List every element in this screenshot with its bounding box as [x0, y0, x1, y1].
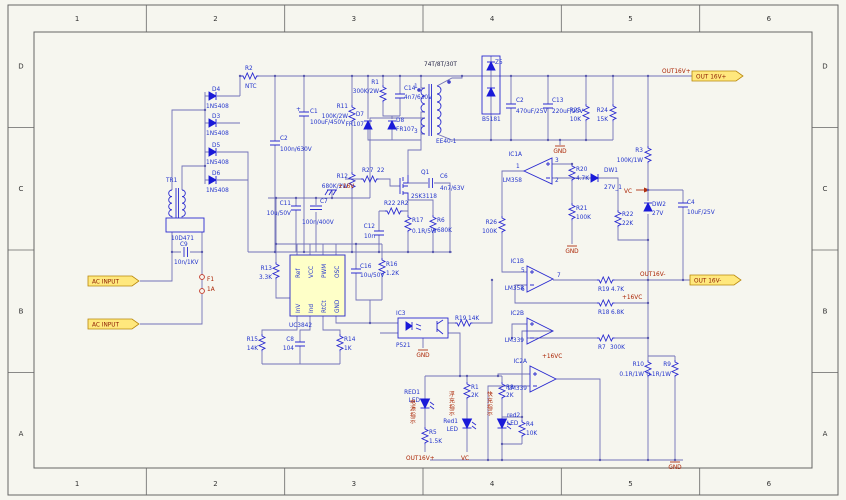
- gnd-label: GND: [553, 149, 567, 155]
- diode-d6: [209, 176, 216, 184]
- zone-col-bottom: 5: [628, 480, 632, 488]
- resistor-r22g: [385, 208, 403, 214]
- schematic-label: 2K: [471, 393, 479, 399]
- zone-row-left: A: [19, 430, 24, 438]
- schematic-label: +16VC: [622, 295, 642, 301]
- schematic-label: 27V: [652, 211, 663, 217]
- schematic-label: 10uF/25V: [687, 210, 715, 216]
- schematic-label: 1.2K: [386, 271, 399, 277]
- schematic-label: C6: [440, 174, 448, 180]
- port-label: OUT 16V+: [696, 74, 727, 80]
- schematic-label: R26: [486, 220, 498, 226]
- opamp-ic1a: [524, 158, 552, 184]
- transformer-t1: [418, 81, 451, 136]
- schematic-label: C11: [280, 201, 292, 207]
- schematic-label: R22: [622, 212, 634, 218]
- zone-col-bottom: 3: [352, 480, 356, 488]
- schematic-label: R4: [526, 422, 534, 428]
- schematic-label: 2R2: [397, 201, 409, 207]
- schematic-label: IC2A: [514, 359, 527, 365]
- schematic-label: 4n7/630V: [404, 95, 432, 101]
- zone-col-top: 6: [767, 15, 772, 23]
- schematic-label: R19: [455, 316, 467, 322]
- resistor-r7: [597, 335, 615, 341]
- schematic-label: C8: [286, 337, 294, 343]
- schematic-label: 5: [521, 268, 525, 274]
- gnd-symbol: GND: [416, 350, 430, 359]
- zone-col-top: 2: [213, 15, 217, 23]
- schematic-label: 470uF/25V: [516, 109, 547, 115]
- resistor-r11: [349, 105, 355, 123]
- schematic-label: C2: [280, 136, 288, 142]
- schematic-label: 1.5K: [429, 439, 442, 445]
- led-arrows: [430, 402, 511, 429]
- schematic-label: 6: [521, 287, 525, 293]
- schematic-label: P521: [396, 343, 411, 349]
- port-label: OUT 16V-: [694, 278, 721, 284]
- schematic-label: R25: [570, 108, 582, 114]
- schematic-label: C9: [180, 242, 188, 248]
- zone-row-right: D: [822, 62, 827, 70]
- schematic-label: R11: [337, 104, 349, 110]
- schematic-label: RtCt: [322, 300, 328, 313]
- diode-d4: [209, 92, 216, 100]
- schematic-label: IC2B: [511, 311, 524, 317]
- schematic-label: RED1: [404, 390, 420, 396]
- schematic-label: B5181: [482, 117, 501, 123]
- schematic-label: FR107: [346, 122, 365, 128]
- schematic-label: 10u/50V: [267, 211, 291, 217]
- schematic-label: F1: [207, 277, 214, 283]
- schematic-label: VC: [624, 189, 632, 195]
- schematic-label: FR107: [396, 127, 415, 133]
- schematic-label: 1N5408: [206, 131, 229, 137]
- schematic-label: R16: [386, 262, 398, 268]
- schematic-label: 2SK3118: [411, 194, 437, 200]
- schematic-label: 100uF/450V: [310, 120, 345, 126]
- schematic-label: 100K: [482, 229, 497, 235]
- zone-row-right: C: [823, 185, 828, 193]
- schematic-label: 浮充指示: [449, 390, 455, 417]
- schematic-label: R21: [576, 206, 588, 212]
- cap-c9: [184, 247, 188, 257]
- zone-row-right: B: [823, 307, 828, 315]
- resistor-r18: [597, 300, 615, 306]
- resistor-r22: [615, 210, 621, 228]
- mosfet-q1: [400, 175, 408, 200]
- schematic-label: R24: [597, 108, 609, 114]
- schematic-label: 10u/50V: [360, 273, 384, 279]
- zone-col-bottom: 2: [213, 480, 217, 488]
- schematic-label: D3: [212, 114, 220, 120]
- cap-c8: [295, 342, 305, 346]
- schematic-label: R10: [633, 362, 645, 368]
- schematic-label: R6: [437, 218, 445, 224]
- schematic-label: 680K: [437, 228, 452, 234]
- schematic-label: 电源指示: [410, 398, 416, 425]
- schematic-label: 1: [414, 84, 418, 90]
- schematic-label: R7: [598, 345, 606, 351]
- resistor-r19: [597, 277, 615, 283]
- zone-col-top: 5: [628, 15, 632, 23]
- schematic-label: C1: [310, 109, 318, 115]
- schematic-label: C4: [687, 200, 695, 206]
- cap-c2: [270, 141, 280, 145]
- zone-row-right: A: [823, 430, 828, 438]
- diode-z5a: [487, 62, 495, 70]
- schematic-label: R5: [429, 430, 437, 436]
- schematic-label: R19: [598, 287, 610, 293]
- schematic-label: D6: [212, 171, 220, 177]
- schematic-label: DW2: [652, 202, 666, 208]
- schematic-label: 3: [555, 158, 559, 164]
- schematic-label: +16V: [338, 184, 354, 190]
- schematic-label: 1A: [207, 287, 215, 293]
- resistor-r4: [519, 420, 525, 438]
- schematic-label: Ind: [309, 304, 315, 313]
- schematic-label: IC3: [396, 311, 406, 317]
- resistor-led3: [499, 382, 505, 400]
- schematic-label: 7: [557, 273, 561, 279]
- schematic-label: 300K/2W: [353, 89, 380, 95]
- schematic-label: Red1: [443, 419, 458, 425]
- port-label: AC INPUT: [92, 279, 120, 285]
- schematic-label: 2: [555, 178, 559, 184]
- schematic-label: 74T/8T/30T: [424, 62, 457, 68]
- schematic-label: D5: [212, 143, 220, 149]
- schematic-label: 1N5408: [206, 160, 229, 166]
- gnd-label: GND: [416, 353, 430, 359]
- schematic-label: InV: [296, 304, 302, 313]
- cap-c13: [543, 104, 553, 108]
- resistor-r14: [337, 334, 343, 352]
- symbols-layer: [166, 56, 688, 461]
- schematic-label: LED: [447, 427, 459, 433]
- schematic-label: 100K/1W: [617, 158, 644, 164]
- resistor-r24: [610, 104, 616, 122]
- schematic-label: OUT16V+: [406, 456, 435, 462]
- schematic-label: R8: [506, 385, 514, 391]
- schematic-label: TR1: [165, 178, 178, 184]
- diode-d7: [364, 121, 372, 129]
- schematic-label: 1N5408: [206, 104, 229, 110]
- schematic-label: 14K: [468, 316, 479, 322]
- resistor-r17: [405, 215, 411, 233]
- optocoupler-ic3: [398, 318, 448, 338]
- schematic-label: 100n/400V: [302, 220, 334, 226]
- schematic-label: 15K: [597, 117, 608, 123]
- gnd-symbol: GND: [668, 462, 682, 471]
- schematic-page: 123456 123456 DCBA DCBA: [0, 0, 846, 500]
- zone-col-bottom: 6: [767, 480, 772, 488]
- resistor-r13: [273, 262, 279, 280]
- zone-col-top: 3: [352, 15, 356, 23]
- led-fast-charge: [498, 419, 507, 428]
- schematic-label: +16VC: [542, 354, 562, 360]
- schematic-label: UC3842: [289, 323, 312, 329]
- resistor-r21: [569, 203, 575, 221]
- schematic-label: 1N5408: [206, 188, 229, 194]
- schematic-label: C16: [360, 264, 372, 270]
- schematic-label: 22K: [622, 221, 633, 227]
- schematic-label: 10n: [364, 234, 375, 240]
- schematic-label: 14K: [247, 346, 258, 352]
- zone-col-top: 4: [490, 15, 495, 23]
- zone-row-left: C: [19, 185, 24, 193]
- schematic-label: 4.7K: [611, 287, 624, 293]
- schematic-label: R14: [344, 337, 356, 343]
- schematic-label: DW1: [604, 168, 618, 174]
- schematic-label: R1: [471, 385, 479, 391]
- led-red1: [421, 399, 430, 408]
- schematic-label: 3: [414, 129, 418, 135]
- resistor-r1: [380, 85, 386, 103]
- schematic-label: 1K: [344, 346, 352, 352]
- schematic-label: Q1: [421, 170, 430, 176]
- schematic-label: OSC: [335, 266, 341, 278]
- schematic-label: PWM: [322, 264, 328, 278]
- diode-d8: [388, 121, 396, 129]
- schematic-label: R13: [261, 266, 273, 272]
- zener-dw1: [591, 174, 598, 182]
- port-out-16v-[interactable]: OUT 16V-: [690, 275, 741, 285]
- schematic-canvas: 123456 123456 DCBA DCBA: [0, 0, 846, 500]
- schematic-label: LM339: [505, 338, 525, 344]
- schematic-label: LM358: [503, 178, 523, 184]
- schematic-label: 1: [516, 164, 520, 170]
- gnd-symbol: GND: [565, 246, 579, 255]
- resistor-r2-ntc: [241, 73, 259, 79]
- schematic-label: C13: [552, 98, 564, 104]
- schematic-label: red2: [507, 413, 521, 419]
- resistor-r25: [583, 104, 589, 122]
- schematic-label: GND: [335, 299, 341, 313]
- schematic-label: 10K: [526, 431, 537, 437]
- schematic-label: C2: [516, 98, 524, 104]
- schematic-label: 0.1R/1W: [619, 372, 644, 378]
- port-out-16v-[interactable]: OUT 16V+: [692, 71, 743, 81]
- schematic-label: R1: [371, 80, 379, 86]
- schematic-label: D7: [356, 112, 364, 118]
- schematic-label: 300K: [610, 345, 625, 351]
- schematic-label: 6.8K: [611, 310, 624, 316]
- port-ac-input[interactable]: AC INPUT: [88, 319, 139, 329]
- schematic-label: IC1B: [511, 259, 524, 265]
- schematic-label: 10n/1KV: [174, 260, 198, 266]
- schematic-label: D4: [212, 87, 220, 93]
- schematic-label: 快充指示: [487, 390, 493, 417]
- schematic-label: R27: [362, 168, 374, 174]
- schematic-label: OUT16V+: [662, 69, 691, 75]
- schematic-label: Z5: [495, 60, 503, 66]
- zone-col-top: 1: [75, 15, 79, 23]
- diode-z5b: [487, 88, 495, 96]
- schematic-label: R20: [576, 167, 588, 173]
- schematic-label: 4.7K: [576, 176, 589, 182]
- led-float-charge: [463, 419, 472, 428]
- schematic-label: OUT16V-: [640, 272, 665, 278]
- schematic-label: D8: [396, 118, 404, 124]
- zone-row-left: D: [18, 62, 23, 70]
- diode-d5: [209, 148, 216, 156]
- schematic-label: IC1A: [509, 152, 522, 158]
- schematic-label: 2K: [506, 393, 514, 399]
- schematic-label: 3.3K: [259, 275, 272, 281]
- gnd-symbol: GND: [553, 146, 567, 155]
- cap-c7: [310, 206, 322, 210]
- schematic-label: R2: [245, 66, 253, 72]
- cap-c11: [291, 206, 301, 210]
- gnd-label: GND: [668, 465, 682, 471]
- schematic-label: R15: [247, 337, 259, 343]
- schematic-label: R12: [337, 174, 349, 180]
- schematic-label: 4n7/63V: [440, 186, 464, 192]
- zone-col-bottom: 4: [490, 480, 495, 488]
- opamp-ic1b: [527, 266, 553, 292]
- labels-layer: D41N5408D31N5408D51N5408D61N5408R2NTCTR1…: [165, 60, 715, 462]
- schematic-label: R3: [635, 148, 643, 154]
- resistor-led2: [464, 382, 470, 400]
- schematic-label: R17: [412, 218, 424, 224]
- cap-c6: [429, 178, 433, 188]
- schematic-label: 27V_1: [604, 185, 622, 191]
- varistor-box: [166, 218, 204, 232]
- resistor-r3: [645, 146, 651, 164]
- schematic-label: Ref: [296, 268, 302, 278]
- schematic-label: VCC: [309, 266, 315, 278]
- schematic-label: 0.1R/5W: [412, 229, 437, 235]
- schematic-label: 0.1R/1W: [646, 372, 671, 378]
- schematic-label: R22: [384, 201, 396, 207]
- schematic-label: 22: [377, 168, 385, 174]
- resistor-r26: [499, 216, 505, 234]
- schematic-label: 104: [283, 346, 294, 352]
- zone-row-left: B: [19, 307, 24, 315]
- schematic-label: R9: [663, 362, 671, 368]
- schematic-label: 10K: [570, 117, 581, 123]
- resistor-r9: [672, 360, 678, 378]
- resistor-r20: [569, 164, 575, 182]
- schematic-label: C7: [320, 199, 328, 205]
- schematic-label: +: [296, 107, 301, 113]
- gnd-label: GND: [565, 249, 579, 255]
- resistor-r15: [259, 334, 265, 352]
- schematic-label: VC: [461, 456, 469, 462]
- schematic-label: EE40-1: [436, 139, 457, 145]
- zener-dw2: [644, 203, 652, 211]
- schematic-label: 100n/630V: [280, 147, 312, 153]
- earth-symbol: [325, 190, 337, 195]
- schematic-label: C12: [364, 224, 376, 230]
- cap-c2-sec: [506, 104, 516, 108]
- cap-c12: [374, 231, 384, 235]
- diode-d3: [209, 119, 216, 127]
- schematic-label: NTC: [245, 84, 257, 90]
- zone-col-bottom: 1: [75, 480, 79, 488]
- schematic-label: 100K: [576, 215, 591, 221]
- resistor-r5: [422, 427, 428, 445]
- schematic-label: LED: [507, 421, 519, 427]
- port-ac-input[interactable]: AC INPUT: [88, 276, 139, 286]
- comparator-ic2a: [530, 366, 556, 392]
- schematic-label: R18: [598, 310, 610, 316]
- schematic-label: 100K/2W: [322, 114, 349, 120]
- choke-tr1: [169, 188, 186, 218]
- port-label: AC INPUT: [92, 322, 120, 328]
